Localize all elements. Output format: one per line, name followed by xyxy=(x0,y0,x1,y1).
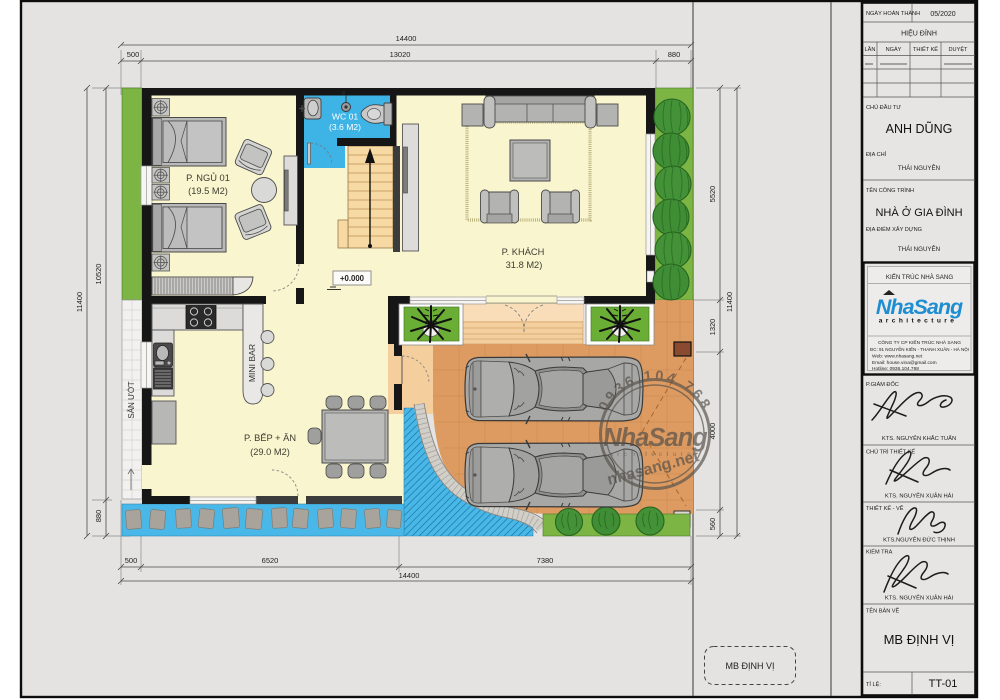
svg-text:11400: 11400 xyxy=(725,292,734,312)
svg-text:NGÀY: NGÀY xyxy=(886,46,902,53)
svg-text:architecture: architecture xyxy=(879,318,958,325)
svg-text:14400: 14400 xyxy=(396,34,417,43)
svg-text:1320: 1320 xyxy=(708,319,717,336)
svg-text:SÂN ƯỚT: SÂN ƯỚT xyxy=(127,381,136,418)
svg-text:(29.0 M2): (29.0 M2) xyxy=(250,447,290,457)
svg-text:THÁI NGUYÊN: THÁI NGUYÊN xyxy=(898,164,940,172)
svg-text:ĐC: 91 NGUYỄN KIẾN - THANH XUÂ: ĐC: 91 NGUYỄN KIẾN - THANH XUÂN - HÀ NỘI xyxy=(870,346,969,352)
svg-text:5520: 5520 xyxy=(708,186,717,203)
svg-text:CÔNG TY CP KIẾN TRÚC NHÀ SANG: CÔNG TY CP KIẾN TRÚC NHÀ SANG xyxy=(878,339,961,346)
svg-text:TT-01: TT-01 xyxy=(929,678,958,690)
svg-text:05/2020: 05/2020 xyxy=(930,11,955,18)
svg-text:Email: house.vina@gmail.com: Email: house.vina@gmail.com xyxy=(872,360,937,366)
svg-text:MB ĐỊNH VỊ: MB ĐỊNH VỊ xyxy=(725,661,774,671)
svg-text:P. KHÁCH: P. KHÁCH xyxy=(502,247,545,257)
svg-text:13020: 13020 xyxy=(390,50,411,59)
svg-text:KTS.NGUYỄN ĐỨC THỊNH: KTS.NGUYỄN ĐỨC THỊNH xyxy=(883,537,955,544)
svg-text:6520: 6520 xyxy=(262,556,279,565)
svg-text:DUYỆT: DUYỆT xyxy=(949,45,969,53)
svg-text:31.8 M2): 31.8 M2) xyxy=(506,260,543,270)
svg-text:11400: 11400 xyxy=(75,292,84,312)
svg-text:THÁI NGUYÊN: THÁI NGUYÊN xyxy=(898,245,940,253)
svg-text:LẦN: LẦN xyxy=(865,46,876,53)
svg-text:ĐỊA CHỈ: ĐỊA CHỈ xyxy=(866,151,887,158)
svg-text:TỈ LỆ:: TỈ LỆ: xyxy=(866,680,881,688)
svg-text:(19.5 M2): (19.5 M2) xyxy=(188,186,228,196)
svg-text:880: 880 xyxy=(94,510,103,523)
svg-text:WC 01: WC 01 xyxy=(332,112,358,122)
svg-text:THIẾT KẾ: THIẾT KẾ xyxy=(913,46,938,53)
svg-text:NhaSang: NhaSang xyxy=(603,424,708,452)
svg-text:14400: 14400 xyxy=(399,571,420,580)
svg-text:7380: 7380 xyxy=(537,556,554,565)
svg-text:KIẾN TRÚC NHÀ SANG: KIẾN TRÚC NHÀ SANG xyxy=(886,274,953,281)
svg-text:Hotline: 0936.104.768: Hotline: 0936.104.768 xyxy=(872,366,919,372)
svg-text:KTS. NGUYỄN XUÂN HẢI: KTS. NGUYỄN XUÂN HẢI xyxy=(885,595,954,602)
svg-text:P. BẾP + ĂN: P. BẾP + ĂN xyxy=(244,433,296,443)
svg-text:MINI BAR: MINI BAR xyxy=(247,344,257,382)
svg-text:NhaSang: NhaSang xyxy=(876,295,963,319)
svg-text:KTS. NGUYỄN KHẮC TUẤN: KTS. NGUYỄN KHẮC TUẤN xyxy=(882,434,956,442)
svg-text:Web: www.nhasang.net: Web: www.nhasang.net xyxy=(872,354,923,360)
svg-text:NGÀY HOÀN THÀNH: NGÀY HOÀN THÀNH xyxy=(866,10,920,17)
svg-text:NHÀ Ở GIA ĐÌNH: NHÀ Ở GIA ĐÌNH xyxy=(875,206,962,219)
svg-text:10520: 10520 xyxy=(94,264,103,285)
svg-text:ĐỊA ĐIỂM XÂY DỰNG: ĐỊA ĐIỂM XÂY DỰNG xyxy=(866,226,922,233)
svg-text:CHỦ ĐẦU TƯ: CHỦ ĐẦU TƯ xyxy=(866,104,901,111)
svg-text:KIỂM TRA: KIỂM TRA xyxy=(866,549,893,556)
svg-text:880: 880 xyxy=(668,50,681,59)
svg-text:HIỆU ĐÍNH: HIỆU ĐÍNH xyxy=(901,29,937,38)
svg-text:P.GIÁM ĐỐC: P.GIÁM ĐỐC xyxy=(866,381,899,388)
svg-text:TÊN CÔNG TRÌNH: TÊN CÔNG TRÌNH xyxy=(866,186,914,194)
svg-text:+0.000: +0.000 xyxy=(340,274,365,283)
svg-text:ANH DŨNG: ANH DŨNG xyxy=(886,121,953,136)
svg-text:500: 500 xyxy=(127,50,140,59)
svg-text:P. NGỦ 01: P. NGỦ 01 xyxy=(186,172,230,183)
svg-text:THIẾT KẾ - VẼ: THIẾT KẾ - VẼ xyxy=(866,505,904,512)
svg-text:560: 560 xyxy=(708,518,717,531)
svg-text:TÊN BẢN VẼ: TÊN BẢN VẼ xyxy=(866,607,900,615)
svg-text:MB ĐỊNH VỊ: MB ĐỊNH VỊ xyxy=(884,632,955,647)
svg-text:KTS. NGUYỄN XUÂN HẢI: KTS. NGUYỄN XUÂN HẢI xyxy=(885,493,954,500)
svg-text:500: 500 xyxy=(125,556,138,565)
svg-text:(3.6 M2): (3.6 M2) xyxy=(329,122,361,132)
